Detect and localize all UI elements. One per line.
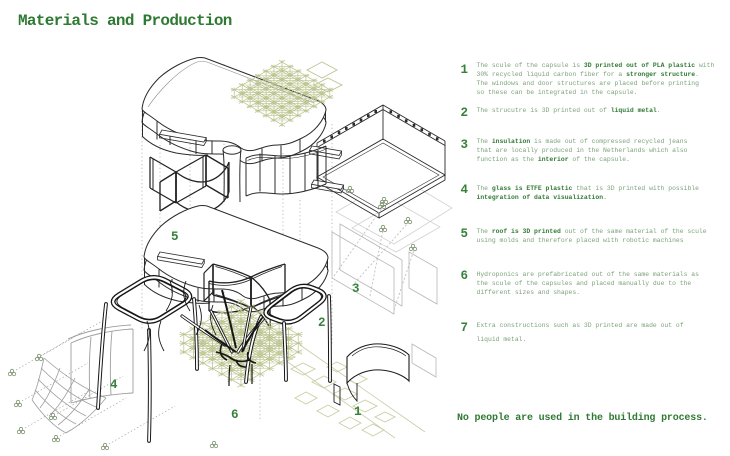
svg-text:3: 3 xyxy=(352,282,360,296)
svg-text:4: 4 xyxy=(110,378,118,392)
svg-text:2: 2 xyxy=(318,316,326,330)
svg-text:1: 1 xyxy=(354,405,362,419)
svg-text:6: 6 xyxy=(231,408,239,422)
svg-text:5: 5 xyxy=(171,230,179,244)
